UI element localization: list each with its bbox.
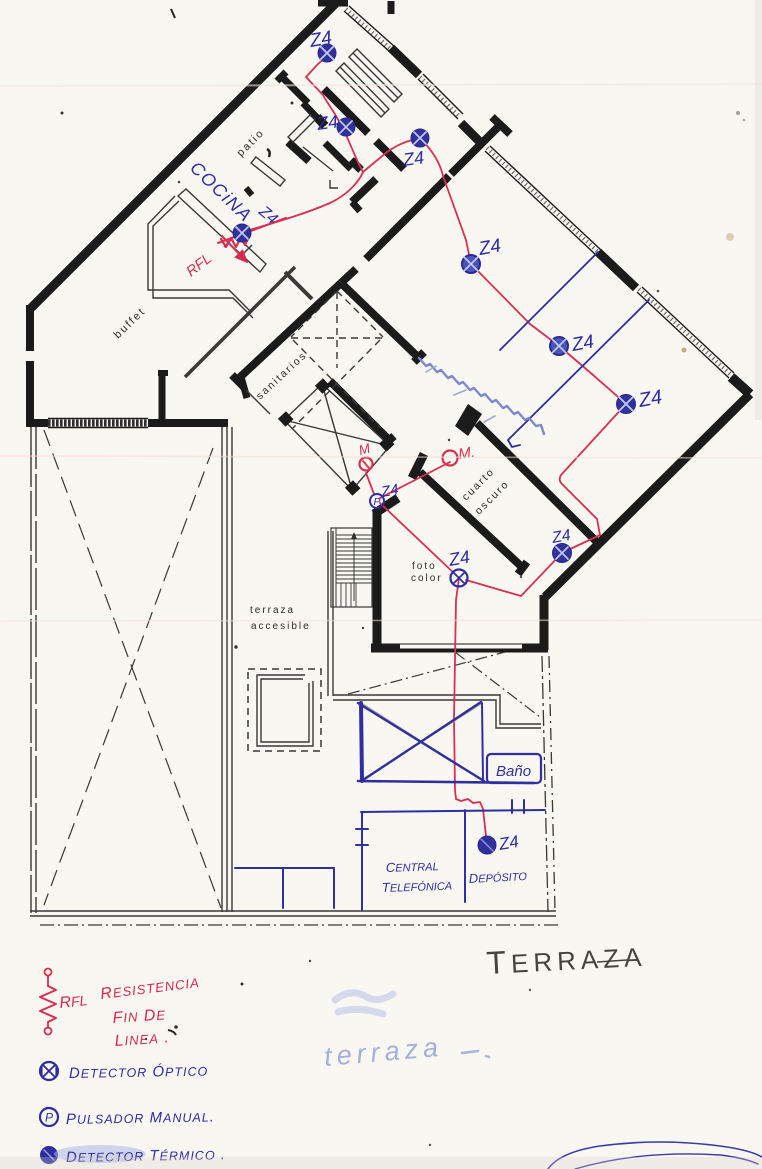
svg-text:Z4: Z4 (307, 27, 333, 52)
svg-text:foto: foto (412, 561, 437, 572)
svg-text:Z4: Z4 (496, 832, 520, 854)
svg-text:Z4: Z4 (569, 331, 595, 356)
svg-text:M.: M. (457, 444, 476, 463)
svg-text:Z4: Z4 (446, 547, 471, 571)
svg-text:Z4: Z4 (315, 111, 340, 134)
svg-text:accesible: accesible (251, 621, 311, 632)
svg-text:P: P (45, 1111, 53, 1125)
svg-text:Z4: Z4 (476, 235, 502, 260)
svg-text:P: P (374, 496, 381, 508)
svg-text:Z4: Z4 (636, 386, 664, 412)
svg-text:color: color (411, 573, 443, 584)
svg-text:terraza: terraza (250, 605, 295, 616)
svg-text:Z4: Z4 (550, 527, 572, 547)
svg-text:Z4: Z4 (401, 147, 426, 170)
svg-text:Baño: Baño (496, 763, 531, 780)
svg-text:Z4: Z4 (379, 481, 400, 501)
